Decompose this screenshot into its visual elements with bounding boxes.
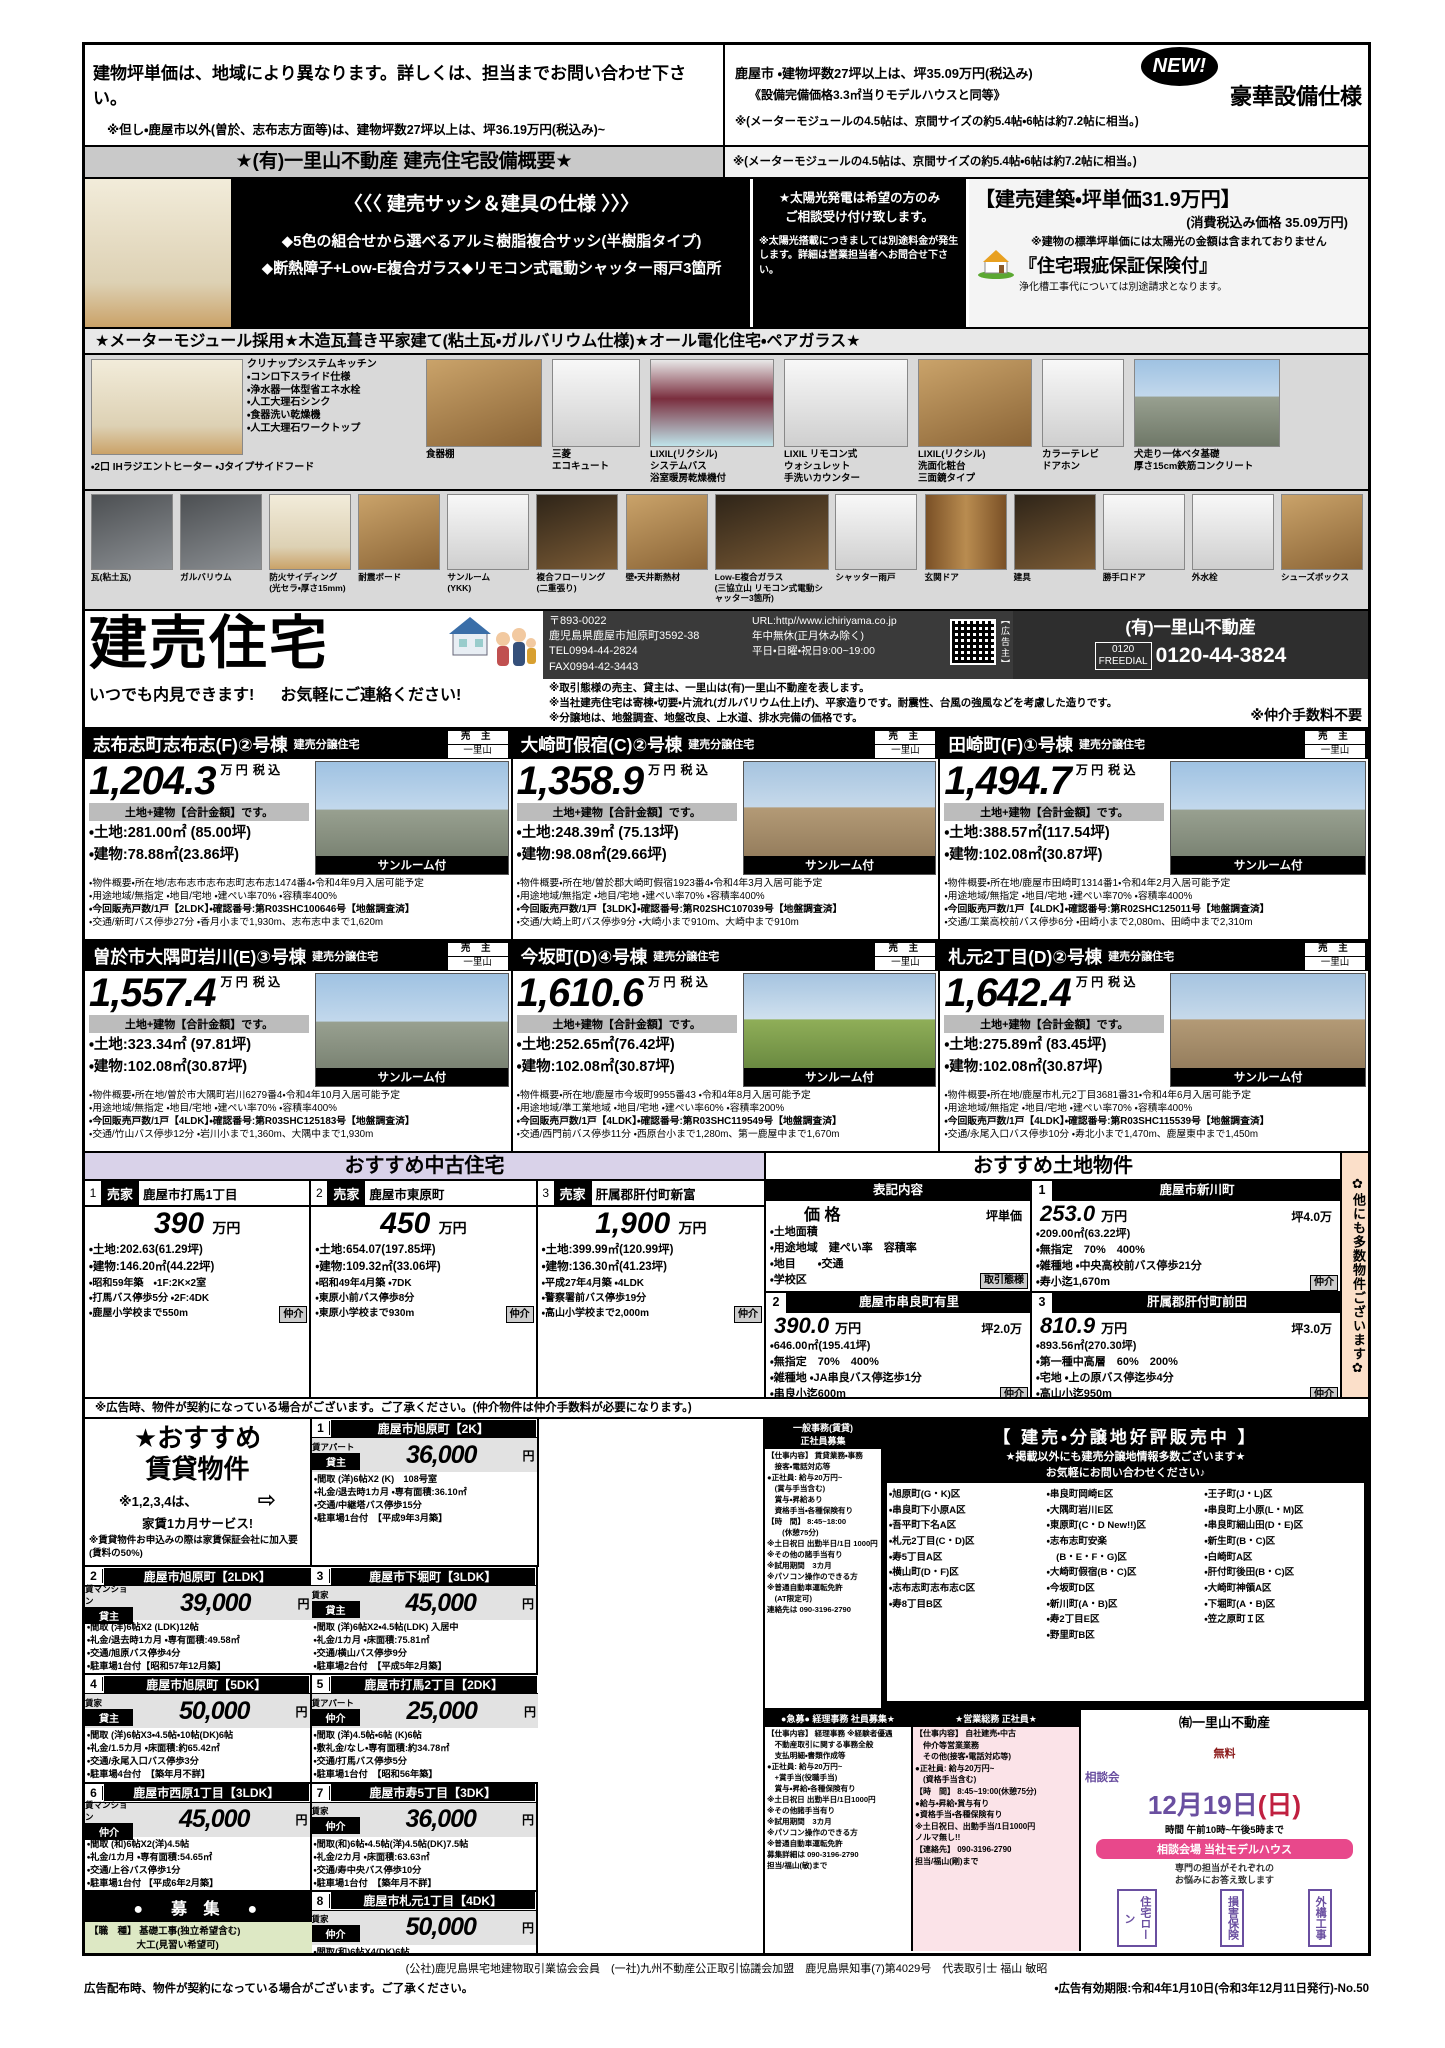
advertiser-label: 【広告主】 [998,611,1013,679]
company-info-bar: 〒893-0022 鹿児島県鹿屋市旭原町3592-38 TEL0994-44-2… [543,611,1368,679]
rental-kind: 賃家 [312,1589,360,1601]
rental-price-unit: 円 [524,1703,538,1720]
equipment-photo [1042,359,1124,447]
no-fee-note: ※仲介手数料不要 [1250,705,1362,725]
rental-details: ・間取 (洋)4.5帖・6帖 (K)6帖 ・敷礼金/なし・専有面積:約34.78… [312,1728,539,1781]
equipment-item: 複合フローリング (二重張り) [536,494,621,609]
land-price-unit: 万円 [835,1318,861,1337]
photo-caption: サンルーム付 [1171,1068,1365,1086]
property-header: 今坂町(D)④号棟 建売分譲住宅 売 主一里山 [513,941,939,971]
used-price: 450 万円 [311,1207,535,1242]
footer-license-line: (公社)鹿児島県宅地建物取引業協会会員 (一社)九州不動産公正取引協議会加盟 鹿… [84,1960,1369,1976]
note-1: ※取引態様の売主、貸主は、一里山は(有)一里山不動産を表します。 [549,681,1364,696]
property-price-row: 1,494.7 万 円 税 込 [944,761,1170,801]
property-name: 大崎町假宿(C)②号棟 [521,732,683,757]
detail-access: ・交通/竹山バス停歩12分 ・岩川小まで1,360m、大隅中まで1,930m [89,1128,509,1141]
land-card: 3肝属郡肝付町前田 810.9万円坪3.0万 ・893.56㎡(270.30坪)… [1032,1293,1340,1399]
sales-area-item: ・肝付町後田(B・C)区 [1204,1565,1362,1581]
land-listings: おすすめ土地物件 表記内容 価 格坪単価 ・土地面積 ・用途地域 建ぺい率 容積… [766,1153,1342,1397]
rental-and-jobs-section: ★おすすめ 賃貸物件 ※1,2,3,4は、⇨ 家賃1カ月サービス! ※賃貸物件お… [85,1419,1368,1953]
sales-area-item: ・大崎町假宿(B・C)区 [1047,1565,1205,1581]
card-number: 3 [1032,1293,1054,1313]
used-built: ・昭和49年4月築 ・7DK [311,1276,535,1291]
equipment-caption: 防火サイディング (光セラ・厚さ15mm) [269,572,345,593]
used-building: ・建物:146.20㎡(44.22坪) [85,1259,309,1276]
unit-price-sub: (消費税込み価格 35.09万円) [975,212,1364,231]
property-price: 1,557.4 [89,973,215,1013]
qr-code [950,619,996,665]
equipment-item: サンルーム (YKK) [447,494,532,609]
footer-contract-note: 広告配布時、物件が契約になっている場合がございます。ご了承ください。 [84,1980,473,1996]
equipment-photo [91,494,173,570]
card-number: 1 [312,1421,330,1435]
property-photo: サンルーム付 [743,973,937,1087]
rental-kind: 賃家 [85,1697,133,1709]
property-price: 1,494.7 [944,761,1070,801]
used-built: ・昭和59年築 ・1F:2K×2室 [85,1276,309,1291]
price-note-badge: 土地+建物【合計金額】です。 [89,1015,309,1033]
land-zoning-line: ・無指定 70% 400% [766,1355,1030,1371]
rental-location: 鹿屋市西原1丁目【3LDK】 [104,1784,309,1801]
used-house-card: 1 売家 鹿屋市打馬1丁目 390 万円 ・土地:202.63(61.29坪) … [85,1181,311,1397]
price-tax-label: 税 込 [1108,976,1135,990]
property-name: 志布志町志布志(F)②号棟 [93,732,288,757]
property-photo: サンルーム付 [315,973,509,1087]
subdivision-sales-box: 【 建売・分譲地好評販売中 】 ★掲載以外にも建売分譲地情報多数ございます★ お… [883,1419,1368,1708]
seller-box: 売 主一里山 [447,730,509,759]
equipment-item: 食器棚 [426,359,546,489]
property-details: ・物件概要・所在地/鹿屋市今坂町9955番43 ・令和4年8月入居可能予定 ・用… [513,1087,939,1151]
tel[interactable]: TEL0994-44-2824 [549,644,748,659]
used-access: ・打馬バス停歩5分 ・2F:4DK [85,1291,309,1306]
sales-area-item: ・寿2丁目E区 [1047,1612,1205,1628]
spec-section: 〈〈〈 建売サッシ＆建具の仕様 〉〉〉 ◆5色の組合せから選べるアルミ樹脂複合サ… [85,179,1368,329]
detail-zoning: ・用途地域/無指定 ・地目/宅地 ・建ぺい率70% ・容積率400% [89,1102,509,1115]
rental-price: 45,000 [360,1589,522,1618]
consultation-topic: 損害保険 [1220,1889,1244,1947]
property-card: 田崎町(F)①号棟 建売分譲住宅 売 主一里山 1,494.7 万 円 税 込 … [940,729,1368,939]
land-legend: 表記内容 価 格坪単価 ・土地面積 ・用途地域 建ぺい率 容積率 ・地目 ・交通… [766,1181,1032,1293]
used-price: 1,900 万円 [538,1207,764,1242]
sales-area-item: ・東原町(C・D New!!)区 [1047,1518,1205,1534]
property-type: 建売分譲住宅 [1108,948,1174,964]
card-number: 1 [85,1186,101,1200]
price-unit: 万 円 [1076,976,1103,990]
property-price-row: 1,358.9 万 円 税 込 [517,761,743,801]
kitchen-photo [91,359,243,455]
detail-overview: ・物件概要・所在地/曽於郡大崎町假宿1923番4・令和4年3月入居可能予定 [517,877,937,890]
sales-area-item: ・串良町下小原A区 [889,1503,1047,1519]
rental-price-unit: 円 [522,1919,536,1936]
header-section: 建物坪単価は、地域により異なります。詳しくは、担当までお問い合わせ下さい。 ※但… [85,45,1368,147]
rental-details: ・間取 (洋)6帖X2 (LDK)12帖 ・礼金/退去時1カ月 ・専有面積:49… [85,1620,312,1673]
land-area: ・土地:281.00㎡ (85.00坪) [89,823,315,845]
brokerage-badge: 仲介 [1310,1387,1338,1399]
used-houses: おすすめ中古住宅 1 売家 鹿屋市打馬1丁目 390 万円 ・土地:202.63… [85,1153,766,1397]
land-zoning-line: ・無指定 70% 400% [1032,1243,1340,1259]
consultation-desc: 専門の担当がそれぞれの お悩みにお答え致します [1085,1862,1364,1886]
flyer-page: 建物坪単価は、地域により異なります。詳しくは、担当までお問い合わせ下さい。 ※但… [0,0,1445,2048]
equipment-caption: 犬走り一体ベタ基礎 厚さ15cm鉄筋コンクリート [1134,449,1253,473]
more-listings-banner: ✿他にも多数物件ございます✿ [1342,1153,1368,1397]
legend-price: 価 格 [774,1201,840,1225]
detail-overview: ・物件概要・所在地/曽於市大隅町岩川6279番4・令和4年10月入居可能予定 [89,1089,509,1102]
building-area: ・建物:102.08㎡(30.87坪) [517,1057,743,1079]
land-price: 810.9 [1040,1313,1095,1339]
warranty-title: 『住宅瑕疵保証保険付』 [1019,252,1364,278]
equipment-caption: シャッター雨戸 [835,572,895,583]
used-land: ・土地:202.63(61.29坪) [85,1242,309,1259]
rental-price: 50,000 [360,1913,522,1942]
kitchen-block: クリナップシステムキッチン ・コンロ下スライド仕様 ・浄水器一体型省エネ水栓 ・… [91,359,421,489]
price-note-badge: 土地+建物【合計金額】です。 [517,803,737,821]
land-area: ・土地:275.89㎡ (83.45坪) [944,1035,1170,1057]
property-price-row: 1,642.4 万 円 税 込 [944,973,1170,1013]
arrow-icon: ⇨ [258,1487,276,1513]
used-location: 鹿屋市打馬1丁目 [143,1184,237,1203]
used-school: ・鹿屋小学校まで550m [89,1306,188,1323]
price-notice: 建物坪単価は、地域により異なります。詳しくは、担当までお問い合わせ下さい。 [93,59,717,109]
property-card: 今坂町(D)④号棟 建売分譲住宅 売 主一里山 1,610.6 万 円 税 込 … [513,941,941,1151]
family-house-illustration [445,613,537,680]
job-office-rental: 一般事務(賃貸) 正社員募集 【仕事内容】 賃貸業務・事務 接客・電話対応等 ●… [765,1419,883,1708]
price-note-badge: 土地+建物【合計金額】です。 [944,1015,1164,1033]
tagline-1: いつでも内見できます! [89,681,254,705]
rental-price: 39,000 [133,1589,297,1618]
rental-price-unit: 円 [295,1811,309,1828]
photo-caption: サンルーム付 [316,856,508,874]
equipment-item: シャッター雨戸 [835,494,920,609]
land-price-unit: 万円 [1101,1206,1127,1225]
rental-location: 鹿屋市下堀町【3LDK】 [331,1568,536,1585]
rental-card: 4鹿屋市旭原町【5DK】 賃家貸主 50,000 円 ・間取 (洋)6帖X3・4… [85,1675,312,1783]
sales-area-item: ・旭原町(G・K)区 [889,1487,1047,1503]
equipment-photo [1014,494,1096,570]
photo-caption: サンルーム付 [744,1068,936,1086]
rental-card: 6鹿屋市西原1丁目【3LDK】 賃マンション仲介 45,000 円 ・間取 (和… [85,1784,312,1892]
recruit-body: 【職 種】 基礎工事(独立希望含む) 大工(見習い希望可) 左官工事 ※弊社では… [85,1922,312,1953]
sales-area-item: ・串良町細山田(D・E)区 [1204,1518,1362,1534]
property-row-1: 志布志町志布志(F)②号棟 建売分譲住宅 売 主一里山 1,204.3 万 円 … [85,729,1368,941]
equipment-photo [180,494,262,570]
property-header: 札元2丁目(D)②号棟 建売分譲住宅 売 主一里山 [940,941,1368,971]
module-note-2: ※(メーターモジュールの4.5帖は、京間サイズの約5.4帖・6帖は約7.2帖に相… [725,147,1368,177]
equipment-photo [918,359,1032,447]
rental-location: 鹿屋市打馬2丁目【2DK】 [331,1676,538,1693]
flyer-frame: 建物坪単価は、地域により異なります。詳しくは、担当までお問い合わせ下さい。 ※但… [82,42,1371,1956]
property-details: ・物件概要・所在地/曽於市大隅町岩川6279番4・令和4年10月入居可能予定 ・… [85,1087,511,1151]
equipment-photo [426,359,542,447]
company-url[interactable]: URL:http//www.ichiriyama.co.jp [752,614,948,629]
sash-line1: ◆5色の組合せから選べるアルミ樹脂複合サッシ(半樹脂タイプ) [282,233,702,250]
property-price-row: 1,557.4 万 円 税 込 [89,973,315,1013]
brokerage-badge: 仲介 [1000,1387,1028,1399]
price-unit: 万 円 [648,976,675,990]
used-and-land-section: おすすめ中古住宅 1 売家 鹿屋市打馬1丁目 390 万円 ・土地:202.63… [85,1153,1368,1399]
job-accounting: ●急募● 経理事務 社員募集★ 【仕事内容】 経理事務 ※経験者優遇 不動産取引… [765,1710,913,1951]
detail-units: ・今回販売戸数/1戸【3LDK】・確認番号:第R02SHC107039号【地盤調… [517,903,937,916]
house-icon [975,245,1017,284]
rental-location: 鹿屋市旭原町【5DK】 [104,1676,309,1693]
rental-role: 貸主 [312,1601,360,1618]
sales-sub1: ★掲載以外にも建売分譲地情報多数ございます★ [887,1448,1364,1464]
for-sale-badge: 売家 [101,1181,139,1206]
kitchen-caption-bottom: ・2口 IHラジエントヒーター ・Jタイプサイドフード [91,458,421,473]
address: 鹿児島県鹿屋市旭原町3592-38 [549,629,748,644]
land-school-line: ・串良小迄600m [770,1387,846,1399]
property-photo: サンルーム付 [1170,973,1366,1087]
equipment-caption: LIXIL リモコン式 ウォシュレット 手洗いカウンター [784,449,860,485]
legend-brokerage: 取引態様 [980,1273,1028,1290]
detail-overview: ・物件概要・所在地/鹿屋市田崎町1314番1・令和4年2月入居可能予定 [944,877,1366,890]
rental-price: 45,000 [133,1805,295,1834]
sash-title: 〈〈〈 建売サッシ＆建具の仕様 〉〉〉 [239,189,744,216]
legend-line: ・地目 ・交通 [766,1257,1030,1273]
land-price: 390.0 [774,1313,829,1339]
property-price: 1,610.6 [517,973,643,1013]
unit-price-note: ※建物の標準坪単価には太陽光の金額は含まれておりません [1031,235,1364,250]
detail-zoning: ・用途地域/無指定 ・地目/宅地 ・建ぺい率70% ・容積率400% [944,890,1366,903]
sales-area-item: ・大崎町神領A区 [1204,1581,1362,1597]
equipment-caption: 瓦(粘土瓦) [91,572,131,583]
rental-price-unit: 円 [522,1447,536,1464]
overview-title: ★(有)一里山不動産 建売住宅設備概要★ [85,147,725,177]
equipment-photo [552,359,640,447]
rental-price-unit: 円 [295,1703,309,1720]
detail-overview: ・物件概要・所在地/志布志市志布志町志布志1474番4・令和4年9月入居可能予定 [89,877,509,890]
sales-area-item: ・吾平町下名A区 [889,1518,1047,1534]
sales-area-item: ・串良町上小原(L・M)区 [1204,1503,1362,1519]
legend-line: ・学校区 [770,1273,807,1290]
property-header: 田崎町(F)①号棟 建売分譲住宅 売 主一里山 [940,729,1368,759]
used-location: 鹿屋市東原町 [369,1184,444,1203]
equipment-caption: 建具 [1014,572,1031,583]
used-building: ・建物:136.30㎡(41.23坪) [538,1259,764,1276]
land-tsubo-price: 坪2.0万 [981,1320,1022,1337]
rental-service-note2: 家賃1カ月サービス! [89,1513,306,1532]
rental-card: 2鹿屋市旭原町【2LDK】 賃マンション貸主 39,000 円 ・間取 (洋)6… [85,1567,312,1675]
brokerage-badge: 仲介 [734,1306,762,1323]
job-sales-admin-body: 【仕事内容】 自社建売・中古 仲介等営業業務 その他(接客・電話対応等) ●正社… [913,1727,1079,1868]
property-row-2: 曽於市大隅町岩川(E)③号棟 建売分譲住宅 売 主一里山 1,557.4 万 円… [85,941,1368,1153]
equipment-caption: 耐震ボード [358,572,401,583]
job-office-rental-title: 一般事務(賃貸) 正社員募集 [765,1419,881,1449]
rental-location: 鹿屋市旭原町【2LDK】 [104,1568,311,1585]
solar-note1: ★太陽光発電は希望の方のみ ご相談受け付け致します。 [759,189,960,227]
overview-bar: ★(有)一里山不動産 建売住宅設備概要★ ※(メーターモジュールの4.5帖は、京… [85,147,1368,179]
tagline-2: お気軽にご連絡ください! [280,681,461,705]
rental-price: 36,000 [360,1441,522,1470]
land-school-line: ・高山小迄950m [1036,1387,1112,1399]
card-number: 5 [312,1677,330,1691]
seller-box: 売 主一里山 [1304,942,1366,971]
equipment-item: LIXIL(リクシル) 洗面化粧台 三面鏡タイプ [918,359,1036,489]
job-sales-admin: ★営業総務 正社員★ 【仕事内容】 自社建売・中古 仲介等営業業務 その他(接客… [913,1710,1081,1951]
contract-note: ※広告時、物件が契約になっている場合がございます。ご了承ください。(仲介物件は仲… [85,1399,1368,1419]
used-house-card: 2 売家 鹿屋市東原町 450 万円 ・土地:654.07(197.85坪) ・… [311,1181,537,1397]
legend-line: ・用途地域 建ぺい率 容積率 [766,1241,1030,1257]
price-unit: 万 円 [648,764,675,778]
for-sale-badge: 売家 [554,1181,592,1206]
equipment-item: Low-E複合ガラス (三協立山 リモコン式電動シャッター3箇所) [715,494,832,609]
seller-box: 売 主一里山 [1304,730,1366,759]
property-card: 大崎町假宿(C)②号棟 建売分譲住宅 売 主一里山 1,358.9 万 円 税 … [513,729,941,939]
sales-area-item: ・野里町B区 [1047,1628,1205,1644]
price-unit: 万 円 [1076,764,1103,778]
sales-area-item: ・寿8丁目B区 [889,1597,1047,1613]
equipment-photo [1281,494,1363,570]
used-school: ・東原小学校まで930m [315,1306,414,1323]
recruit-box: ● 募 集 ● 【職 種】 基礎工事(独立希望含む) 大工(見習い希望可) 左官… [85,1892,312,1953]
land-area-line: ・209.00㎡(63.22坪) [1032,1227,1340,1243]
card-number: 6 [85,1786,103,1800]
brokerage-badge: 仲介 [1310,1275,1338,1292]
used-access: ・警察署前バス停歩19分 [538,1291,764,1306]
rental-kind: 賃マンション [85,1799,133,1823]
equipment-caption: Low-E複合ガラス (三協立山 リモコン式電動シャッター3箇所) [715,572,832,604]
equipment-caption: サンルーム (YKK) [447,572,490,593]
land-area-line: ・893.56㎡(270.30坪) [1032,1339,1340,1355]
rental-grid: ★おすすめ 賃貸物件 ※1,2,3,4は、⇨ 家賃1カ月サービス! ※賃貸物件お… [85,1419,765,1953]
tatesuri-logo: 建売住宅 [89,611,329,676]
consult-label: 相談会 [1085,1769,1364,1785]
rental-details: ・間取(和)6帖・4.5帖(洋)4.5帖(DK)7.5帖 ・礼金/2カ月 ・床面… [312,1837,537,1890]
equipment-item: 勝手口ドア [1103,494,1188,609]
land-price: 253.0 [1040,1201,1095,1227]
consultation-day: (日) [1258,1790,1301,1820]
rental-kind: 賃家 [312,1913,360,1925]
land-school-line: ・寿小迄1,670m [1036,1275,1110,1292]
land-access-line: ・雑種地 ・JA串良バス停迄歩1分 [766,1371,1030,1387]
detail-access: ・交通/工業高校前バス停歩6分 ・田崎小まで2,080m、田崎中まで2,310m [944,916,1366,929]
price-tax-label: 税 込 [680,976,707,990]
fax: FAX0994-42-3443 [549,660,748,675]
equipment-photo [626,494,708,570]
rental-card: 3鹿屋市下堀町【3LDK】 賃家貸主 45,000 円 ・間取 (洋)6帖X2・… [312,1567,539,1675]
rental-details: ・間取 (洋)6帖X2 (K) 108号室 ・礼金/退去時1カ月 ・専有面積:3… [312,1472,537,1525]
seller-box: 売 主一里山 [874,942,936,971]
note-3: ※分譲地は、地盤調査、地盤改良、上水道、排水完備の価格です。 [549,711,1364,726]
used-building: ・建物:109.32㎡(33.06坪) [311,1259,535,1276]
detail-units: ・今回販売戸数/1戸【4LDK】・確認番号:第R03SHC119549号【地盤調… [517,1115,937,1128]
land-tsubo-price: 坪4.0万 [1291,1208,1332,1225]
equipment-photo [1103,494,1185,570]
sales-area-column: ・旭原町(G・K)区・串良町下小原A区・吾平町下名A区・札元2丁目(C・D)区・… [889,1487,1047,1697]
land-area: ・土地:388.57㎡(117.54坪) [944,823,1170,845]
sales-area-item: ・今坂町D区 [1047,1581,1205,1597]
property-price: 1,642.4 [944,973,1070,1013]
rental-price-unit: 円 [522,1811,536,1828]
freedial-number[interactable]: 0120-44-3824 [1156,644,1287,668]
sales-area-item: (B・E・F・G)区 [1047,1550,1205,1566]
consultation-company: ㈲一里山不動産 [1085,1712,1364,1731]
price-unit: 万 円 [220,976,247,990]
kitchen-caption: クリナップシステムキッチン ・コンロ下スライド仕様 ・浄水器一体型省エネ水栓 ・… [247,359,377,455]
legend-title: 表記内容 [766,1181,1030,1201]
sales-area-item: ・横山町(D・F)区 [889,1565,1047,1581]
used-house-card: 3 売家 肝属郡肝付町新富 1,900 万円 ・土地:399.99㎡(120.9… [538,1181,764,1397]
sales-area-item: ・笠之原町Ｉ区 [1204,1612,1362,1628]
property-photo: サンルーム付 [1170,761,1366,875]
building-area: ・建物:102.08㎡(30.87坪) [944,845,1170,867]
equipment-caption: LIXIL(リクシル) システムバス 浴室暖房乾燥機付 [650,449,726,485]
property-photo: サンルーム付 [743,761,937,875]
sales-title: 【 建売・分譲地好評販売中 】 [887,1423,1364,1448]
hours-2: 平日・日曜・祝日9:00~19:00 [752,644,948,659]
equipment-photo [269,494,351,570]
land-area: ・土地:252.65㎡(76.42坪) [517,1035,743,1057]
equipment-item: 犬走り一体ベタ基礎 厚さ15cm鉄筋コンクリート [1134,359,1284,489]
property-header: 大崎町假宿(C)②号棟 建売分譲住宅 売 主一里山 [513,729,939,759]
brokerage-badge: 仲介 [506,1306,534,1323]
equipment-item: カラーテレビ ドアホン [1042,359,1128,489]
land-area: ・土地:323.34㎡ (97.81坪) [89,1035,315,1057]
land-access-line: ・宅地 ・上の原バス停迄歩4分 [1032,1371,1340,1387]
equipment-item: シューズボックス [1281,494,1366,609]
land-location: 鹿屋市串良町有里 [788,1293,1030,1313]
consultation-venue-button[interactable]: 相談会場 当社モデルハウス [1096,1839,1353,1859]
equipment-item: 建具 [1014,494,1099,609]
rental-role: 仲介 [312,1709,360,1726]
legend-line: ・土地面積 [766,1225,1030,1241]
detail-access: ・交通/永尾入口バス停歩10分 ・寿北小まで1,470m、鹿屋東中まで1,450… [944,1128,1366,1141]
rental-location: 鹿屋市札元1丁目【4DK】 [331,1892,536,1909]
equipment-caption: 外水栓 [1192,572,1218,583]
rental-kind: 賃アパート [312,1697,360,1709]
sales-area-item: ・新川町(A・B)区 [1047,1597,1205,1613]
equipment-item: 三菱 エコキュート [552,359,644,489]
used-price: 390 万円 [85,1207,309,1242]
building-area: ・建物:78.88㎡(23.86坪) [89,845,315,867]
property-card: 曽於市大隅町岩川(E)③号棟 建売分譲住宅 売 主一里山 1,557.4 万 円… [85,941,513,1151]
rental-price: 50,000 [133,1697,295,1726]
rental-card: 8鹿屋市札元1丁目【4DK】 賃家仲介 50,000 円 ・間取(和)6帖X4(… [312,1892,539,1953]
company-name: (有)一里山不動産 [1017,613,1364,638]
sales-area-item: ・大隅町岩川E区 [1047,1503,1205,1519]
land-access-line: ・雑種地 ・中央高校前バス停歩21分 [1032,1259,1340,1275]
used-land: ・土地:654.07(197.85坪) [311,1242,535,1259]
equipment-photo [358,494,440,570]
footer: (公社)鹿児島県宅地建物取引業協会会員 (一社)九州不動産公正取引協議会加盟 鹿… [82,1956,1371,1996]
equipment-row-1: クリナップシステムキッチン ・コンロ下スライド仕様 ・浄水器一体型省エネ水栓 ・… [85,355,1368,491]
card-number: 1 [1032,1181,1054,1201]
property-name: 今坂町(D)④号棟 [521,944,648,969]
sash-line2: ◆断熱障子+Low-E複合ガラス◆リモコン式電動シャッター雨戸3箇所 [262,260,722,277]
land-area: ・土地:248.39㎡ (75.13坪) [517,823,743,845]
used-access: ・東原小前バス停歩8分 [311,1291,535,1306]
consultation-topic: 外構工事 [1308,1889,1332,1947]
price-tax-label: 税 込 [253,764,280,778]
price-unit: 万 円 [220,764,247,778]
card-number: 7 [312,1786,330,1800]
rental-intro: ★おすすめ 賃貸物件 ※1,2,3,4は、⇨ 家賃1カ月サービス! ※賃貸物件お… [85,1419,312,1567]
job-sales-admin-title: ★営業総務 正社員★ [913,1710,1079,1727]
property-type: 建売分譲住宅 [688,736,754,752]
unit-price-title: 【建売建築・坪単価31.9万円】 [975,183,1364,212]
brokerage-badge: 仲介 [279,1306,307,1323]
sales-area-item: ・下堀町(A・B)区 [1204,1597,1362,1613]
rental-details: ・間取 (洋)6帖X2・4.5帖(LDK) 入居中 ・礼金/1カ月 ・床面積:7… [312,1620,537,1673]
land-card: 2鹿屋市串良町有里 390.0万円坪2.0万 ・646.00㎡(195.41坪)… [766,1293,1032,1399]
property-details: ・物件概要・所在地/曽於郡大崎町假宿1923番4・令和4年3月入居可能予定 ・用… [513,875,939,939]
sales-area-item: ・志布志町志布志C区 [889,1581,1047,1597]
consultation-topic: 住宅ローン [1117,1889,1157,1947]
used-houses-title: おすすめ中古住宅 [85,1153,764,1181]
rental-guarantee-note: ※賃貸物件お申込みの際は家賃保証会社に加入要(賃料の50%) [89,1535,306,1560]
used-location: 肝属郡肝付町新富 [596,1184,696,1203]
sales-area-item: ・王子町(J・L)区 [1204,1487,1362,1503]
photo-caption: サンルーム付 [316,1068,508,1086]
